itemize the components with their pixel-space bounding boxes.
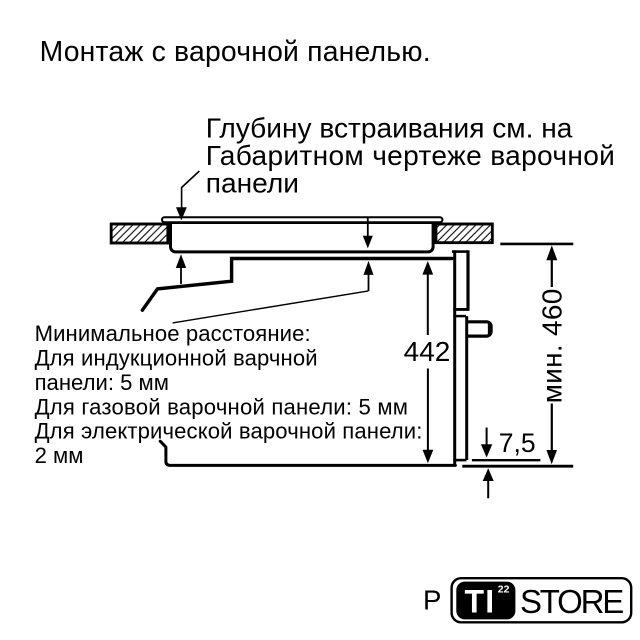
svg-text:Минимальное расстояние:: Минимальное расстояние: — [35, 321, 311, 346]
svg-text:2 мм: 2 мм — [35, 443, 84, 468]
svg-text:Габаритном чертеже варочной: Габаритном чертеже варочной — [206, 140, 615, 171]
svg-text:STORE: STORE — [520, 583, 623, 620]
svg-text:Глубину встраивания см. на: Глубину встраивания см. на — [206, 112, 573, 143]
svg-text:Для газовой варочной панели: 5: Для газовой варочной панели: 5 мм — [35, 394, 409, 419]
svg-text:22: 22 — [498, 584, 510, 596]
svg-text:Монтаж с варочной панелью.: Монтаж с варочной панелью. — [40, 36, 431, 68]
svg-text:442: 442 — [404, 336, 451, 367]
svg-text:7,5: 7,5 — [499, 428, 536, 458]
svg-text:панели: 5 мм: панели: 5 мм — [35, 370, 169, 395]
svg-text:Для индукционной варчной: Для индукционной варчной — [35, 346, 318, 371]
svg-text:TI: TI — [465, 583, 496, 619]
svg-text:панели: панели — [206, 167, 299, 198]
svg-text:Для электрической варочной пан: Для электрической варочной панели: — [35, 419, 423, 444]
svg-text:мин. 460: мин. 460 — [537, 288, 568, 403]
svg-text:P: P — [423, 585, 441, 616]
